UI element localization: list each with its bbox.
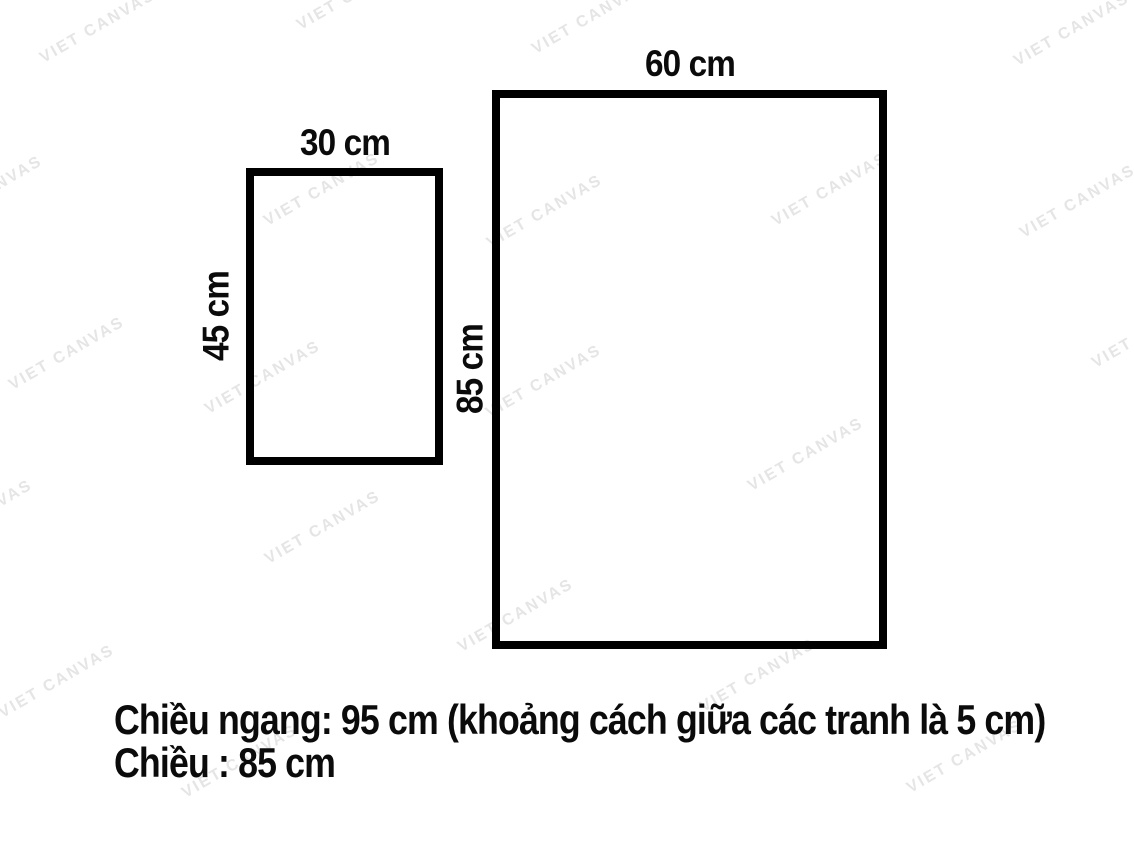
large-frame-width-label: 60 cm [645, 45, 735, 82]
watermark-text: VIET CANVAS [0, 642, 118, 723]
watermark-text: VIET CANVAS [0, 477, 36, 558]
caption-total-height: Chiều : 85 cm [114, 742, 335, 784]
watermark-text: VIET CANVAS [262, 488, 384, 569]
watermark-text: VIET CANVAS [294, 0, 416, 34]
large-frame-rect [492, 90, 887, 649]
watermark-text: VIET CANVAS [6, 314, 128, 395]
small-frame-rect [246, 168, 443, 465]
watermark-text: VIET CANVAS [529, 0, 651, 58]
caption-total-width: Chiều ngang: 95 cm (khoảng cách giữa các… [114, 699, 1045, 741]
watermark-text: VIET CANVAS [1017, 162, 1134, 243]
watermark-text: VIET CANVAS [37, 0, 159, 67]
small-frame-height-label: 45 cm [198, 271, 235, 361]
large-frame-height-label: 85 cm [452, 324, 489, 414]
watermark-text: VIET CANVAS [1089, 292, 1134, 373]
small-frame-width-label: 30 cm [300, 124, 390, 161]
canvas-size-diagram: VIET CANVAS VIET CANVAS VIET CANVAS VIET… [0, 0, 1134, 850]
watermark-text: VIET CANVAS [1011, 0, 1133, 70]
watermark-text: VIET CANVAS [0, 153, 46, 234]
